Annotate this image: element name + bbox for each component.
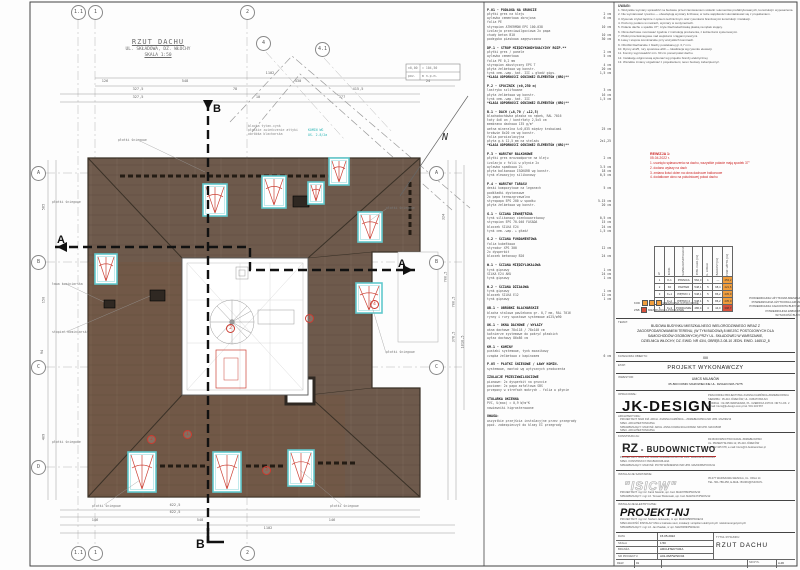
spec-line: tynk elewacyjny silikonowy0,5 cm	[487, 173, 611, 177]
inwestor-row: INWESTOR: UMCS MILANÓW 05-800 DOMKI MAZO…	[616, 373, 795, 390]
grid-bubble: B	[31, 255, 46, 270]
datum-cell: poz.	[408, 74, 416, 78]
areas-summary: POWIERZCHNIA UŻYTKOWA MIESZKAŃ: 2657,54 …	[696, 296, 800, 317]
spec-section-header: KM.1 - KOMINY	[487, 345, 611, 349]
rev-value: 01	[635, 560, 662, 568]
roof-window	[213, 452, 241, 492]
spec-section-header: G.1 - ŚCIANA ZEWNĘTRZNA	[487, 212, 611, 216]
sanitarne-box: INSTALACJE SANITARNE: "ISICW" 05-077 WAR…	[616, 470, 795, 500]
dimension-value: 126	[102, 79, 109, 83]
red-mark: 2	[226, 324, 235, 333]
spec-section-header: P.4 - WARSTWY TARASU	[487, 182, 611, 186]
dimension-value: 1010,5	[460, 336, 464, 349]
rz-budownictwo-logo: RZ - BUDOWNICTWO	[622, 441, 716, 457]
areas-block: LPKOND.NAZWA KONDYGNACJIPOW. CAŁK. [m²]I…	[640, 246, 796, 312]
datum-cell: m n.p.m.	[422, 74, 437, 78]
grid-bubble: 4.1	[315, 42, 330, 57]
areas-summary-line: WYSOKOŚĆ BUDYNKU: 12,04 m	[696, 313, 800, 317]
spec-line: ppoż. zabezpieczyć do klasy EI przegrody	[487, 423, 611, 427]
spec-line: nawiewniki higrosterowane	[487, 406, 611, 410]
areas-col-header: NAZWA KONDYGNACJI	[675, 247, 693, 277]
opracowal-box: OPRACOWAŁ: JK-DESIGN PRACOWNIA PROJEKTOW…	[616, 390, 795, 412]
spec-section-header: P.05 - PŁOTKI ŚNIEGOWE / ŁAWY KOMIN.	[487, 362, 611, 366]
grid-bubble: 4	[256, 36, 271, 51]
drawing-title-label: TYTUŁ RYSUNKU:	[716, 535, 792, 539]
notes-block: UWAGI: 1. Wszystkie wymiary sprawdzić na…	[618, 4, 794, 64]
title-block-line: SPRAWDZAJĄCY: mgr inż. Tomasz Borkowski,…	[620, 495, 792, 499]
drawing-title: RZUT DACHU	[88, 38, 228, 46]
grid-bubble: C	[429, 360, 444, 375]
roof-window	[128, 452, 156, 492]
kategoria-row: KATEGORIA OBIEKTU: XIII	[616, 352, 795, 361]
spec-section-header: P.2 - SPOCZNIK (±0,250 m)	[487, 84, 611, 88]
section-a-label-right: A	[398, 258, 406, 270]
grid-bubble: C	[31, 360, 46, 375]
spec-line: *KLASA ODPORNOŚCI OGNIOWEJ ELEMENTÓW (NR…	[487, 101, 611, 105]
areas-col-header: BALKONY [m²]	[713, 247, 723, 277]
roof-callout: płotki śniegowe	[52, 440, 81, 444]
red-mark: 1	[183, 430, 192, 439]
datum-cell: = 104,50	[422, 66, 437, 70]
grid-bubble: A	[429, 166, 444, 181]
areas-col-header: POW. CAŁK. [m²]	[693, 247, 703, 277]
roof-window	[262, 176, 286, 208]
spec-section-header: DP.1 - STROP MIĘDZYKONDYGNACYJNY ROZP.**	[487, 46, 611, 50]
etap-value: PROJEKT WYKONAWCZY	[616, 362, 795, 371]
grid-bubble: 1.1	[71, 5, 86, 20]
grid-bubble: D	[31, 460, 46, 475]
temat-box: TEMAT: BUDOWA BUDYNKU MIESZKALNEGO WIELO…	[616, 318, 795, 352]
dimension-value: 430	[295, 79, 302, 83]
spec-section-header: OB.1 - OBRÓBKI BLACHARSKIE	[487, 306, 611, 310]
red-mark: 3	[262, 466, 271, 475]
title-block-line: SPRAWDZAJĄCY: mgr inż. Jan Pawlak, nr up…	[620, 526, 792, 530]
note-item: 13. Wszelkie zmiany uzgadniać z projekta…	[618, 60, 794, 64]
spec-line: systemowe, montaż wg wytycznych producen…	[487, 367, 611, 371]
spec-section-header: OK.1 - OKNA DACHOWE / WYŁAZY	[487, 323, 611, 327]
spec-column: P.01 - PODŁOGA NA GRUNCIEpłytki gres na …	[487, 3, 611, 565]
roof-window	[329, 158, 349, 185]
roof-window	[308, 182, 324, 204]
chimney-callout: OS. 2.8/2a	[308, 133, 327, 137]
roof-callout: stopień kominiarski	[52, 330, 88, 334]
etap-label: ETAP:	[618, 363, 626, 367]
sheet-value: A-06	[776, 560, 795, 568]
dimension-value: 1102	[264, 526, 273, 530]
areas-col-header: IL. LOKALI	[703, 247, 713, 277]
chimney-callout: KOMIN WG	[308, 128, 323, 132]
roof-window	[358, 212, 382, 242]
dimension-value: 94	[40, 350, 44, 354]
inwestor-name: UMCS MILANÓW	[616, 374, 795, 381]
sanitarne-label: INSTALACJE SANITARNE:	[618, 472, 652, 476]
red-mark: 2	[147, 435, 156, 444]
dimension-value: 548	[182, 79, 189, 83]
roof-callout: płotki śniegowe	[386, 350, 415, 354]
dimension-value: 1102	[266, 71, 275, 75]
grid-bubble: 1	[88, 546, 103, 561]
dimension-value: 700,5	[451, 297, 455, 308]
dimension-value: 377	[339, 95, 346, 99]
spec-line: rynny i rury spustowe systemowe ø125/ø90	[487, 315, 611, 319]
areas-row: 1K-1PIWNICA562,31—453,2	[655, 276, 733, 283]
konstrukcja-box: KONSTRUKCJA: RZ - BUDOWNICTWO RZ-BUDOWNI…	[616, 432, 795, 470]
grid-bubble: 2	[240, 546, 255, 561]
drawing-subtitle: UL. SKŁADOWA, DZ. WŁOCHY	[88, 47, 228, 52]
sheet-label: NR RYS.	[747, 560, 776, 568]
roof-window	[203, 184, 227, 216]
spec-line: *KLASA ODPORNOŚCI OGNIOWEJ ELEMENTÓW (NR…	[487, 143, 611, 147]
revision-block: REWIZJA 1: 05.04.2022 r. 1. usunięto spł…	[650, 152, 794, 180]
revision-date: 05.04.2022 r.	[650, 156, 794, 160]
grid-bubble: 1	[88, 5, 103, 20]
roof-callout: ława kominiarska	[52, 282, 83, 286]
dimension-value: 548	[197, 518, 204, 522]
spec-line: tynk gipsowy1 cm	[487, 297, 611, 301]
dimension-value: 24	[426, 79, 430, 83]
drawing-sheet: RZUT DACHU UL. SKŁADOWA, DZ. WŁOCHY SKAL…	[0, 0, 800, 570]
spec-line: tynk cem.-wap. + gładź1,5 cm	[487, 229, 611, 233]
spec-section-header: UWAGA:	[487, 414, 611, 418]
north-arrow-label: N	[442, 132, 448, 143]
dimension-value: 146	[92, 518, 99, 522]
spec-line: wyłaz dachowy 86x86 cm	[487, 336, 611, 340]
section-a-label-left: A	[57, 234, 65, 246]
title-block-line: TEL. 501-789-456, E-MAIL: BIURO@ISICW.PL	[708, 481, 794, 485]
red-mark: 1	[305, 314, 314, 323]
areas-row: 2K0PARTER548,1598,4421,6	[655, 283, 733, 290]
temat-label: TEMAT:	[618, 320, 628, 324]
roof-callout: płotki śniegowe	[330, 504, 359, 508]
etap-row: ETAP: PROJEKT WYKONAWCZY	[616, 361, 795, 373]
roof-callout: płotki śniegowe	[386, 206, 415, 210]
dimension-value: 378,5	[451, 332, 455, 343]
opracowal-label: OPRACOWAŁ:	[618, 392, 637, 396]
konstrukcja-label: KONSTRUKCJA:	[618, 434, 640, 438]
roof-window	[288, 450, 314, 486]
dimension-value: 327,5	[133, 95, 144, 99]
revision-item: 4. dodatkowe okno na południowej połaci …	[650, 175, 794, 180]
title-block-column: UWAGI: 1. Wszystkie wymiary sprawdzić na…	[616, 0, 797, 570]
red-mark: 4	[370, 300, 379, 309]
section-b-label-top: B	[213, 103, 221, 115]
drawing-title-value: RZUT DACHU	[716, 542, 792, 549]
bottom-title-table: DATA15.05.2022SKALA1:50BRANŻAARCHITEKTUR…	[616, 532, 795, 567]
dimension-value: 622,5	[170, 503, 181, 507]
grid-bubble: 1.1	[71, 546, 86, 561]
datum-cell: ±0,00	[408, 66, 418, 70]
roof-note: blacha tytan-cynk płaskie zwieńczenie at…	[248, 124, 298, 136]
spec-section-header: P.3 - WARSTWY BALKONOWE	[487, 152, 611, 156]
grid-bubble: A	[31, 166, 46, 181]
title-block-line: e-mail: biuro@jk-design.com.pl tel. 501 …	[708, 405, 794, 409]
drawing-scale: SKALA 1:50	[88, 53, 228, 58]
spec-line: tynk gipsowy1 cm	[487, 276, 611, 280]
roof-callout: płotki śniegowe	[92, 504, 121, 508]
spec-line: płyta żelbetowa wg konstr.20 cm	[487, 203, 611, 207]
dimension-value: 10	[256, 95, 260, 99]
spec-line: czapka żelbetowa z kapinosem6 cm	[487, 354, 611, 358]
areas-col-header: POW. UŻYTK. [m²]	[723, 247, 733, 277]
roof-window	[356, 283, 382, 313]
inwestor-address: 05-800 DOMKI MAZOWIECKIE UL. DZIAŁKOWA 7…	[616, 381, 795, 386]
areas-col-header: KOND.	[665, 247, 675, 277]
spec-line: *KLASA ODPORNOŚCI OGNIOWEJ ELEMENTÓW (NR…	[487, 75, 611, 79]
section-b-label-bottom: B	[196, 537, 205, 551]
roof-callout: płotki śniegowe	[52, 200, 81, 204]
rev-label: REW.	[616, 560, 635, 568]
elektryczne-box: INSTALACJE ELEKTRYCZNE: PROJEKT-NJ PROJE…	[616, 500, 795, 532]
kategoria-label: KATEGORIA OBIEKTU:	[618, 354, 648, 358]
spec-line: bloczek betonowy B2024 cm	[487, 254, 611, 258]
spec-section-header: STOLARKA OKIENNA	[487, 397, 611, 401]
grid-bubble: B	[429, 255, 444, 270]
roof-window	[95, 254, 117, 284]
elektryczne-label: INSTALACJE ELEKTRYCZNE:	[618, 502, 657, 506]
dimension-value: 585	[41, 204, 45, 211]
dimension-value: 78	[233, 87, 237, 91]
grid-bubble: 2	[240, 5, 255, 20]
spec-line: podsypka piaskowa zagęszczona30 cm	[487, 37, 611, 41]
areas-col-header: LP	[655, 247, 665, 277]
roof-callout: płotki śniegowe	[118, 138, 147, 142]
dimension-value: 324	[441, 214, 445, 221]
spec-section-header: G.2 - ŚCIANA FUNDAMENTOWA	[487, 237, 611, 241]
dimension-value: 700,5	[443, 272, 447, 283]
title-block-line: DZIELNICA WŁOCHY, DZ. EWID. NR 43/4, OBR…	[622, 339, 789, 344]
dimension-value: 622,5	[170, 510, 181, 514]
spec-section-header: W.2 - ŚCIANA DZIAŁOWA	[487, 285, 611, 289]
architektura-box: ARCHITEKTURA: PROJEKTANT: MGR INŻ. ARCH.…	[616, 412, 795, 432]
spec-section-header: P.01 - PODŁOGA NA GRUNCIE	[487, 8, 611, 12]
dimension-value: 327,5	[133, 87, 144, 91]
spec-section-header: W.1 - ŚCIANA MIĘDZYLOKALOWA	[487, 263, 611, 267]
inwestor-label: INWESTOR:	[618, 375, 634, 379]
spec-section-header: B.1 - DACH (+8,70 / +12,5)	[487, 110, 611, 114]
dimension-value: 415,5	[353, 87, 364, 91]
spec-section-header: IZOLACJE PRZECIWWILGOCIOWE	[487, 375, 611, 379]
dimension-value: 409	[41, 434, 45, 441]
spec-line: przepony w strefach mokrych - folia w pł…	[487, 388, 611, 392]
drawing-title-block: RZUT DACHU UL. SKŁADOWA, DZ. WŁOCHY SKAL…	[88, 38, 228, 58]
dimension-value: 146	[329, 518, 336, 522]
title-block-line: SPRAWDZAJĄCY: MGR INŻ. PIOTR WIŚNIEWSKI …	[620, 464, 792, 468]
dimension-value: 150	[41, 297, 45, 304]
title-block-line: tel. 602 345 678, e-mail: biuro@rz-budow…	[708, 446, 794, 450]
